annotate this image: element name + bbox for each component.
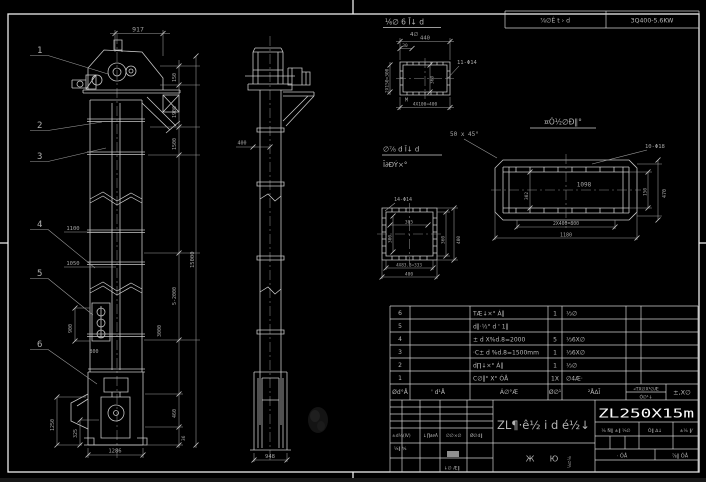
dim-right-400: 400 [456, 236, 462, 244]
front-view-geometry [71, 40, 180, 445]
dim-150: 150 [172, 73, 178, 82]
boot-flange-title-1: ∅⅞ d Ī↓ d [383, 145, 419, 154]
footer-note-top: «TX∅X¹∅Æ [633, 387, 659, 393]
dim-4x83: 4X83.3=333 [396, 263, 422, 269]
cad-drawing: ⅞∅Ê t › d 3Q400-5.6KW ⅙∅ 6 Ī↓ d 4∅ 917 1… [0, 0, 706, 482]
detail-a-scale: 4∅ [410, 32, 418, 38]
dim-low: 3000 [157, 325, 163, 337]
drawing-subtitle-2: Ю [550, 455, 559, 464]
balloon-6: 6 [37, 340, 42, 350]
balloon-4: 4 [37, 220, 42, 230]
row6-name: TÆ↓×° Á‖ [472, 311, 505, 318]
dim-1050: 1050 [66, 261, 79, 267]
sig-label-3: ∅∅×∅ [446, 433, 462, 439]
dim-base-948: 948 [265, 454, 275, 460]
footer-weight: ±,X∅ [673, 389, 691, 397]
dim-bottom-400: 400 [405, 272, 413, 278]
row3-qty: 1 [553, 350, 557, 357]
row1-name: C∅‖° X° ÓÅ [473, 376, 509, 383]
right-header-2: Ó‖ ∆↓ [648, 427, 662, 434]
spout-title: ¤Ó½∅Ð‖° [544, 118, 582, 127]
centerlines [117, 34, 270, 463]
row3-no: 3 [398, 349, 402, 356]
footer-qty: Ø∅¹ [549, 389, 562, 396]
balloon-1: 1 [37, 46, 42, 56]
spec-table: ⅞∅Ê t › d 3Q400-5.6KW ⅙∅ 6 Ī↓ d 4∅ [383, 11, 699, 38]
dim-head-width: 917 [132, 26, 144, 34]
dim-440: 440 [420, 36, 430, 42]
dim-302: 302 [524, 192, 530, 200]
dim-400-side: 400 [237, 141, 246, 147]
chamfer-text: 50 x 45° [450, 131, 479, 138]
sheet-count-label: · ÓÅ [617, 453, 628, 460]
row6-qty: 1 [553, 311, 557, 318]
row4-material: ⅓6X∅ [566, 337, 585, 344]
detail-boot-flange: ∅⅞ d Ī↓ d Ī∂ÐÝ×° 14-Φ14 305 300 360 400 … [377, 145, 462, 280]
row6-material: ⅓∅ [566, 311, 577, 318]
row4-no: 4 [398, 336, 402, 343]
dim-800: 800 [89, 349, 98, 355]
dim-boot-width: 1286 [108, 449, 121, 455]
dim-right-470: 470 [662, 189, 668, 198]
side-view-geometry [245, 48, 314, 450]
row5-no: 5 [398, 323, 402, 330]
dim-30: 30 [402, 43, 408, 49]
dim-2x150: 2X150=300 [385, 68, 391, 93]
row1-qty: 1X [551, 376, 559, 383]
drawing-subtitle-1: Ж [526, 455, 535, 464]
row3-material: ⅓6X∅ [566, 350, 585, 357]
faint-stamp-smudge [308, 407, 328, 433]
side-view-dimensions: 400 948 [236, 141, 290, 463]
dim-305: 305 [405, 220, 413, 226]
dim-1100: 1100 [66, 226, 79, 232]
dim-boot-height: 1250 [50, 419, 56, 431]
dim-1500: 1500 [172, 138, 178, 150]
dim-right-360: 360 [441, 236, 447, 244]
spec-cell-right: 3Q400-5.6KW [631, 18, 674, 25]
sig-label-6: ↓∅ Æ‖ [444, 466, 460, 472]
row2-name: d∏↓×° Á‖ [473, 363, 503, 370]
spec-cell-left: ⅞∅Ê t › d [540, 16, 570, 25]
row2-no: 2 [398, 362, 402, 369]
cad-drawing-canvas: ⅞∅Ê t › d 3Q400-5.6KW ⅙∅ 6 Ī↓ d 4∅ 917 1… [0, 0, 706, 482]
holes-10-phi18: 10-Φ18 [645, 144, 665, 150]
sig-label-2: ↓∏∂∂Ã [423, 432, 439, 439]
dim-overall-height: 15000 [190, 251, 196, 268]
footer-note-bottom: Ó∅¹↓ [639, 394, 652, 401]
dim-1900: 1900 [172, 106, 178, 118]
row4-name: ± d X%d.8=2000 [473, 337, 525, 344]
dim-1098: 1098 [577, 182, 592, 189]
footer-name2: ' d¹Å [431, 389, 446, 396]
detail-flange-a: 440 30 2X150=300 360 4X100=400 M 11-Φ14 [385, 36, 478, 111]
row1-no: 1 [398, 375, 402, 382]
balloon-5: 5 [37, 269, 42, 279]
balloon-3: 3 [37, 152, 42, 162]
dim-900: 900 [68, 324, 74, 333]
dim-4x100: 4X100=400 [413, 102, 438, 108]
detail-spout: ¤Ó½∅Ð‖° 1098 302 150 470 2X400=800 1180 … [491, 118, 668, 241]
dim-mid-sections: 5-2000 [172, 287, 178, 305]
vertical-stamp-text: ⅛∅⅛ [567, 456, 572, 468]
row5-name: d‖·½° d ' 1‖ [473, 324, 509, 331]
detail-a-title: ⅙∅ 6 Ī↓ d [385, 18, 424, 27]
dim-460: 460 [172, 409, 178, 418]
chamfer-note: 50 x 45° [450, 131, 497, 158]
dim-2x400: 2X400=800 [553, 221, 579, 227]
footer-code: Ød°Å [392, 389, 409, 396]
row2-material: ⅓∅ [566, 363, 577, 370]
footer-name: Á∅°Æ [500, 389, 518, 396]
sheet-number-label: ⅞‖ ÓÅ [672, 453, 689, 460]
dim-360: 360 [430, 76, 436, 84]
dim-m-mark: M [405, 98, 408, 104]
parts-table: 6 TÆ↓×° Á‖ 1 ⅓∅ 5 d‖·½° d ' 1‖ 4 ± d X%d… [390, 306, 698, 401]
dim-right-150: 150 [643, 188, 649, 196]
dim-36: 36 [181, 435, 187, 441]
drawing-title: ZL¶·ê½ i d é½↓ [497, 418, 590, 432]
approval-stamp-mark [447, 451, 459, 457]
sig-label-5: ⅛‖ ⅍ [394, 446, 407, 452]
boot-flange-title-2: Ī∂ÐÝ×° [383, 160, 407, 169]
row1-material: ∅4Æ· [566, 376, 583, 383]
title-block: ZL¶·ê½ i d é½↓ Ж Ю ⅛∅⅛ ZL250X15m ⅙ Ñ‖ ±‖… [390, 400, 698, 472]
dim-325: 325 [73, 429, 79, 438]
row2-qty: 1 [553, 363, 557, 370]
right-header-1: ⅙ Ñ‖ ±‖ ⅓∅ [601, 427, 630, 434]
sig-label-1: ±d⅛(Ⅳ) [392, 433, 411, 439]
holes-14-phi14: 14-Φ14 [394, 197, 412, 203]
holes-11-phi14: 11-Φ14 [457, 60, 478, 66]
row6-no: 6 [398, 310, 402, 317]
balloon-2: 2 [37, 121, 42, 131]
row3-name: ·C± d %d.8=1500mm [473, 350, 539, 357]
dim-1180: 1180 [560, 233, 572, 239]
right-header-3: ±⅙ ‖⁄ [680, 428, 694, 434]
model-number: ZL250X15m [598, 406, 694, 421]
sig-label-4: Ø∅d‖ [470, 432, 483, 439]
row4-qty: 5 [553, 337, 557, 344]
footer-material: ²Å∆Ī [588, 389, 601, 396]
dim-300: 300 [388, 235, 394, 243]
